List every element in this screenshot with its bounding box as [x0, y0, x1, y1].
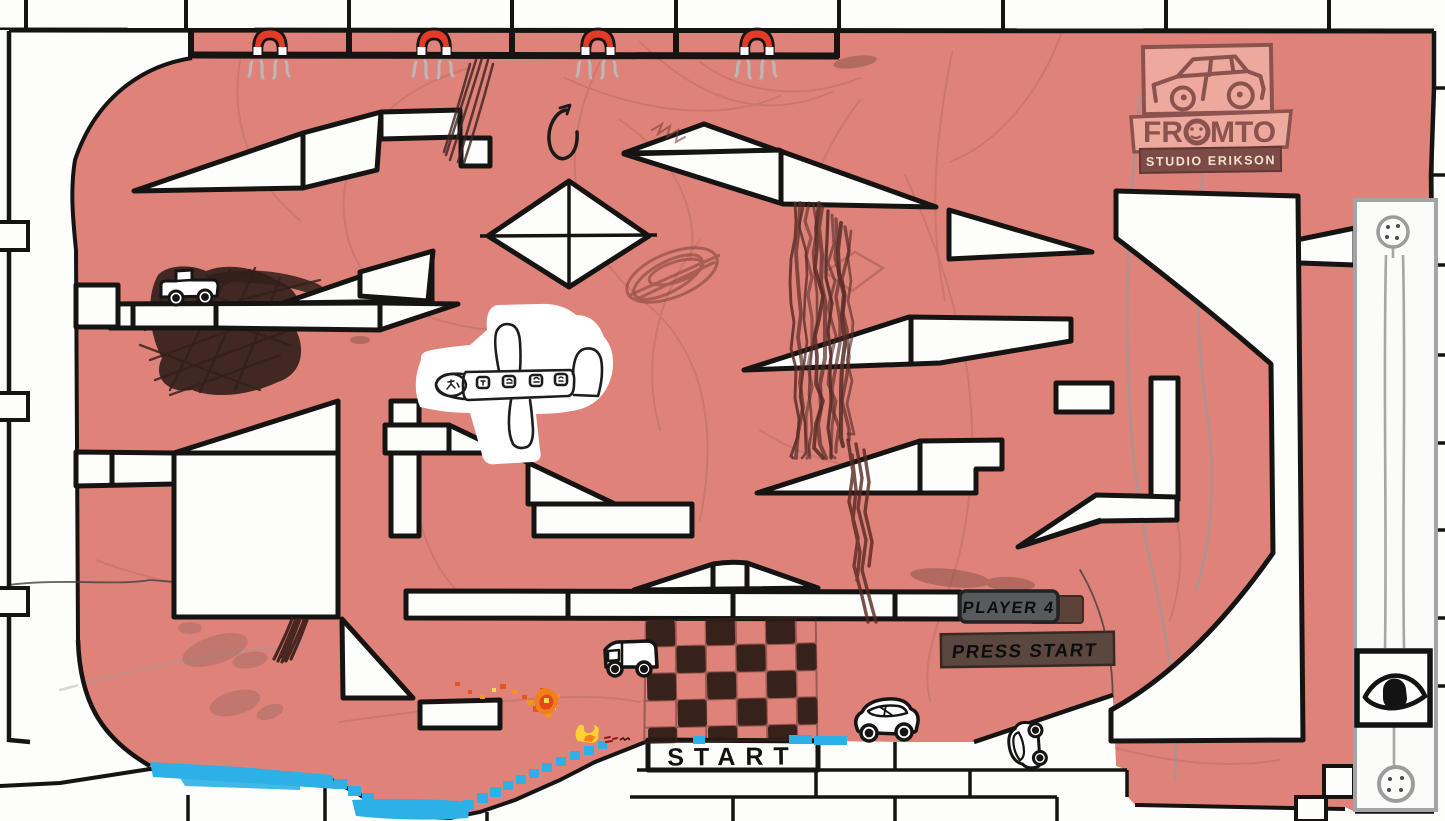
- svg-text:STUDIO ERIKSON: STUDIO ERIKSON: [1146, 153, 1276, 169]
- svg-text:FR: FR: [1143, 116, 1183, 149]
- svg-text:MTO: MTO: [1210, 116, 1276, 149]
- svg-text:START: START: [667, 742, 799, 771]
- svg-text:PLAYER 4: PLAYER 4: [961, 598, 1056, 617]
- svg-text:PRESS START: PRESS START: [951, 639, 1099, 662]
